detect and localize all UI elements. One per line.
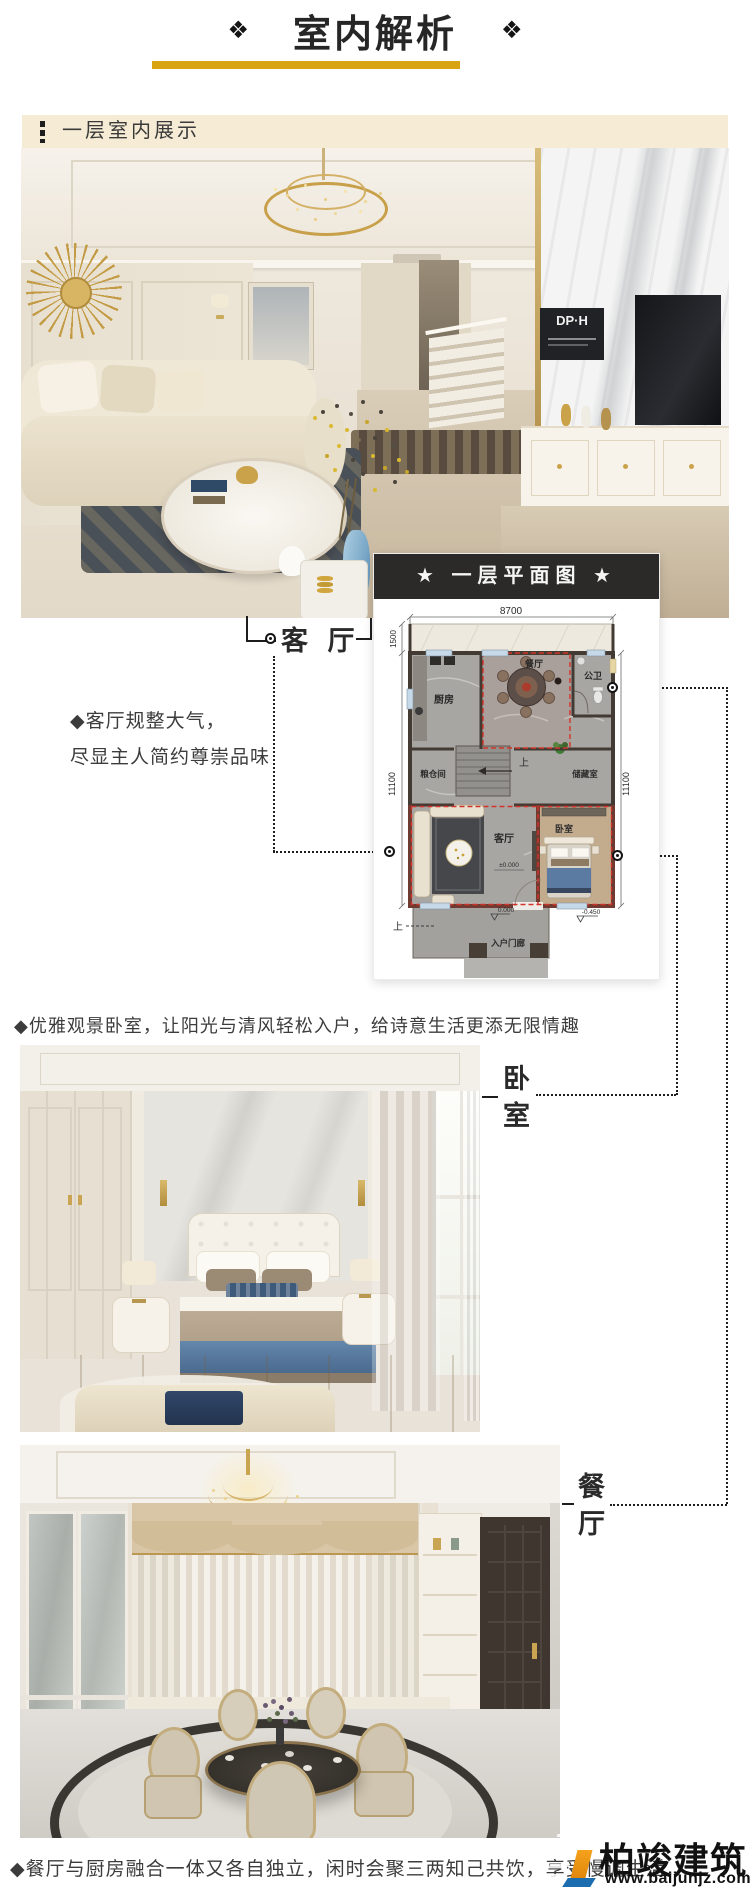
living-description: ◆客厅规整大气， 尽显主人简约尊崇品味	[70, 704, 350, 776]
framed-art	[249, 283, 313, 369]
place-settings	[225, 1755, 234, 1761]
bedroom-plan-dot	[612, 850, 623, 861]
ceiling-tray	[40, 1053, 460, 1085]
watermark-logo-icon	[543, 1834, 597, 1888]
section-title: 一层室内展示	[62, 115, 200, 148]
wall-sconce	[160, 1180, 167, 1206]
living-callout-dot	[265, 633, 276, 644]
floor-plan-drawing: 8700 1500 11100 11100 厨房 餐厅 公卫 粮仓间 储藏室 客…	[374, 599, 659, 979]
dining-room-photo	[20, 1445, 560, 1838]
dim-left: 11100	[387, 772, 397, 796]
chair-front	[246, 1761, 316, 1838]
sunburst-mirror	[26, 243, 122, 339]
living-callout-elbow-right	[356, 618, 372, 640]
bedroom-dotted-vertical	[676, 855, 678, 1095]
chair-right-seat	[354, 1771, 414, 1817]
room-bath: 公卫	[584, 671, 602, 681]
bedroom-label: 卧室	[499, 1064, 529, 1138]
living-desc-line2: 尽显主人简约尊崇品味	[70, 740, 350, 776]
dim-top: 8700	[500, 606, 523, 617]
bedroom-dotted-h2	[536, 1094, 676, 1096]
dashed-bar-icon	[40, 121, 45, 143]
sofa-pillow	[99, 364, 156, 414]
gold-teapot	[236, 466, 258, 484]
ornament-left-icon: ❖	[227, 16, 249, 45]
header: ❖ 室内解析 ❖	[0, 0, 750, 60]
page-title: 室内解析	[293, 3, 457, 58]
living-desc-line1: ◆客厅规整大气，	[70, 704, 350, 740]
valance	[132, 1503, 418, 1555]
table-lamp	[122, 1261, 156, 1285]
navy-throw	[165, 1391, 243, 1425]
room-dining: 餐厅	[524, 658, 543, 669]
wall-sconce	[211, 294, 229, 308]
living-room-label: 客 厅	[281, 619, 361, 658]
dim-right: 11100	[621, 772, 631, 796]
wall-trim	[132, 1091, 144, 1281]
dining-label: 餐厅	[574, 1472, 604, 1546]
level-living: ±0.000	[499, 862, 519, 869]
chair-back-right	[306, 1687, 346, 1739]
poster-page: ❖ 室内解析 ❖ 一层室内展示	[0, 0, 750, 1890]
section-bar: 一层室内展示	[22, 115, 728, 148]
gold-coins	[317, 576, 333, 581]
bedroom-photo	[20, 1045, 480, 1432]
bedroom-description: ◆优雅观景卧室，让阳光与清风轻松入户，给诗意生活更添无限情趣	[14, 1012, 580, 1038]
staircase	[429, 328, 504, 429]
brand-plaque: DP·H	[540, 308, 604, 360]
sofa-pillow	[155, 369, 207, 414]
title-underline	[152, 61, 460, 69]
plaque-text: DP·H	[556, 313, 588, 328]
dining-plan-dot	[607, 682, 618, 693]
centerpiece-flowers	[263, 1703, 268, 1708]
dining-dotted-h2	[610, 1504, 727, 1506]
tv-cabinet	[521, 426, 729, 508]
room-porch: 入户门廊	[490, 938, 526, 948]
floor-plan-card: ★ 一层平面图 ★	[373, 553, 660, 980]
chair-back-left	[218, 1689, 258, 1741]
watermark: 柏竣建筑 www.baijunjz.com	[543, 1832, 748, 1890]
dim-terrace: 1500	[389, 630, 398, 648]
level-porch: 0.000	[498, 907, 515, 914]
dining-dotted-vertical	[726, 687, 728, 1504]
mark-up-stairs: 上	[519, 757, 529, 769]
floor-plan-title: ★ 一层平面图 ★	[416, 565, 617, 587]
watermark-site: www.baijunjz.com	[605, 1870, 750, 1888]
living-dotted-horizontal	[273, 851, 385, 853]
living-room-photo: DP·H	[21, 148, 729, 618]
dining-label-tick	[562, 1503, 574, 1505]
wall-sconce	[358, 1180, 365, 1206]
ornament-right-icon: ❖	[501, 16, 523, 45]
room-storage: 储藏室	[571, 769, 598, 779]
tv-screen	[635, 295, 721, 425]
living-plan-dot	[384, 846, 395, 857]
mark-up-entry: 上	[393, 921, 403, 933]
side-table	[300, 560, 368, 618]
floor-plan-title-bar: ★ 一层平面图 ★	[374, 554, 659, 599]
room-grain: 粮仓间	[420, 769, 446, 779]
centerpiece-vase	[276, 1727, 284, 1745]
sofa-pillow	[37, 360, 100, 414]
chair-left-seat	[144, 1775, 202, 1819]
plan-stairs	[456, 746, 512, 796]
flower-spray	[321, 410, 325, 414]
cabinet-decor	[561, 404, 571, 426]
built-in-cabinet	[418, 1513, 482, 1711]
ring-chandelier	[254, 148, 394, 243]
room-living: 客厅	[493, 832, 514, 845]
table-books	[191, 480, 227, 492]
room-kitchen: 厨房	[434, 693, 454, 706]
nightstand	[112, 1297, 170, 1353]
room-bedroom: 卧室	[555, 823, 573, 834]
bedroom-label-tick	[482, 1096, 498, 1098]
level-yard: -0.450	[582, 909, 601, 916]
runner-rug	[351, 430, 541, 474]
